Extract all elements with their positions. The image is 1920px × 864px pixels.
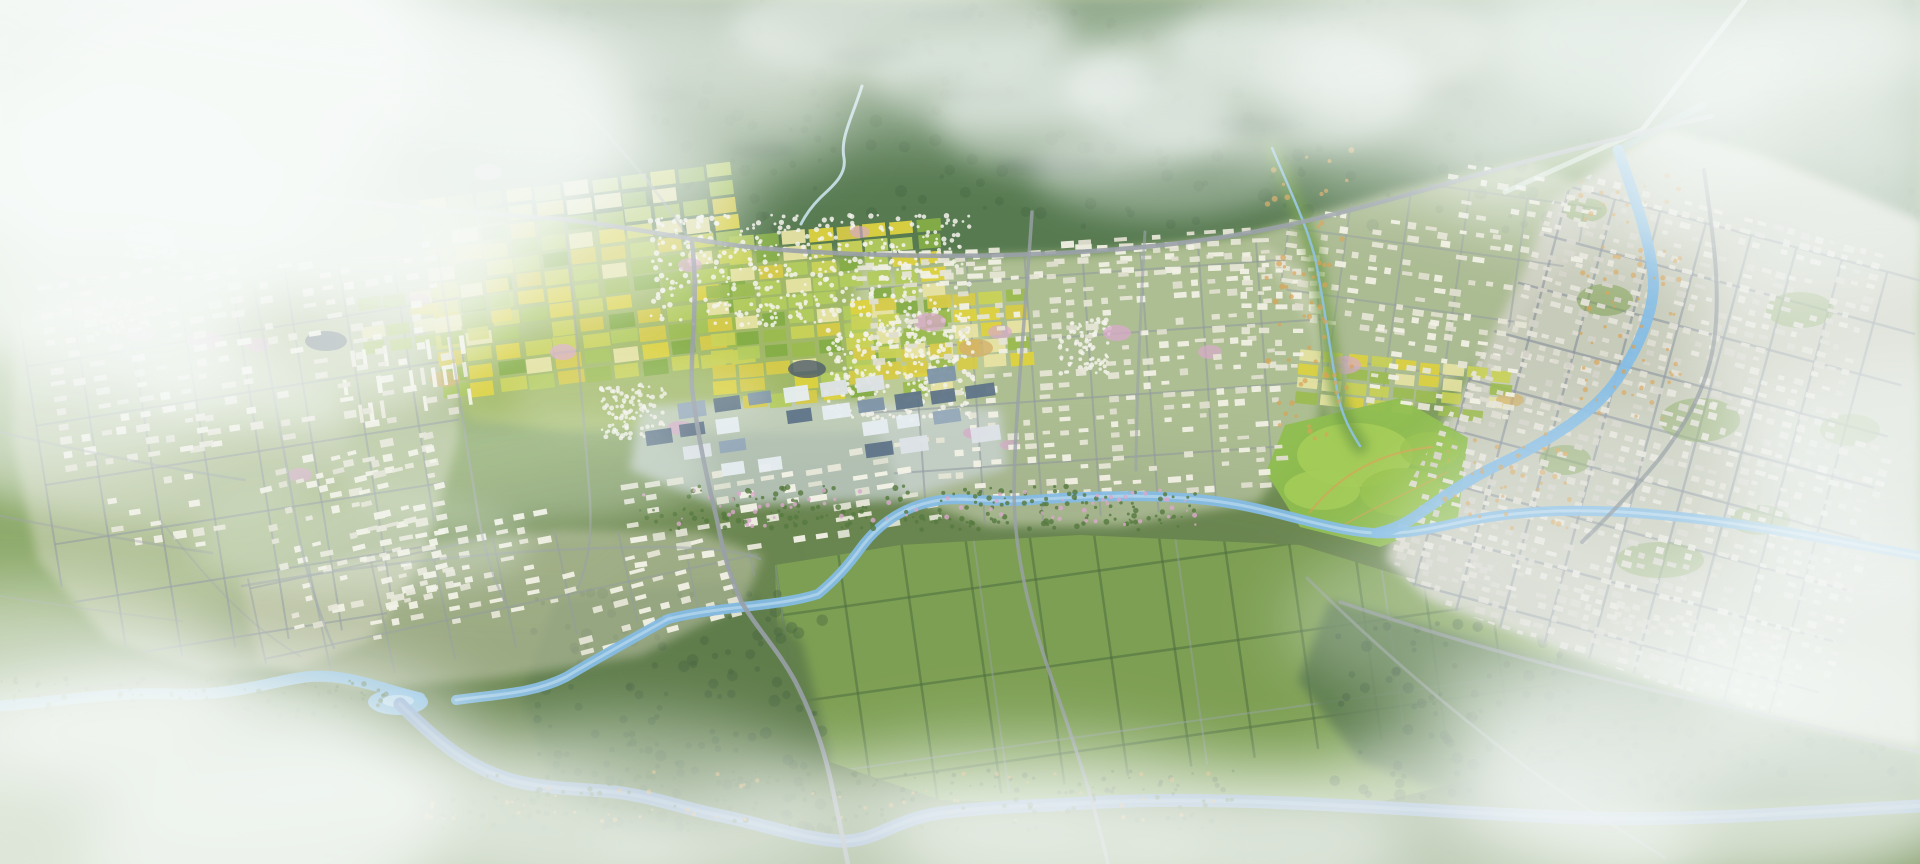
aerial-masterplan-view — [0, 0, 1920, 864]
masterplan-render-stage — [0, 0, 1920, 864]
